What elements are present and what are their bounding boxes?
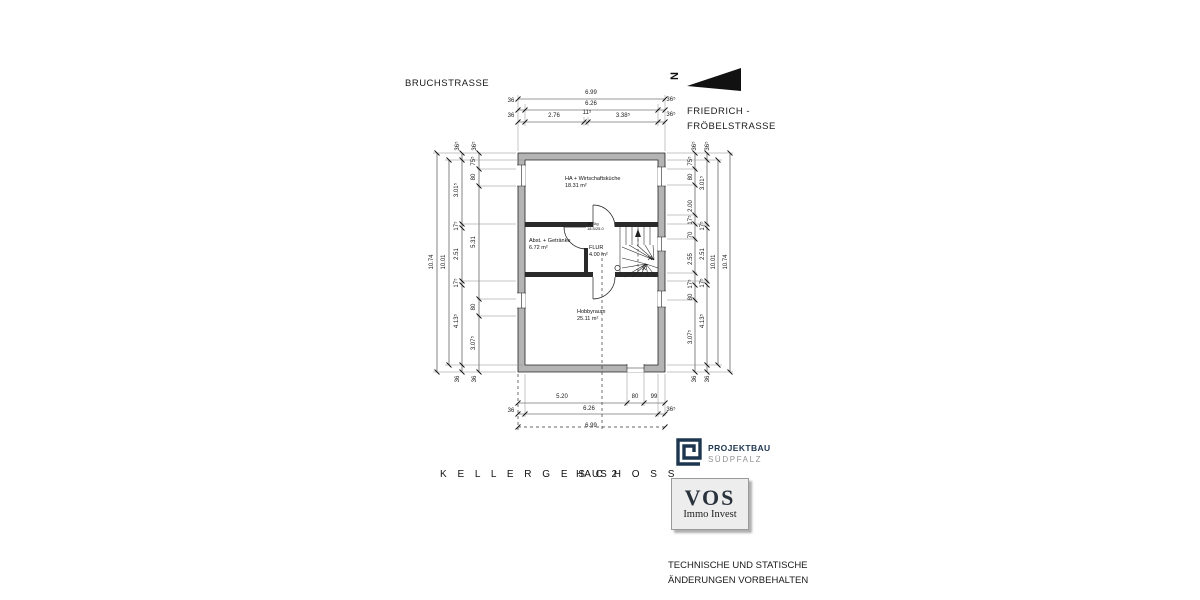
street-label-bruchstrasse: BRUCHSTRASSE <box>405 78 489 89</box>
stair-cross-marks <box>642 256 652 270</box>
projektbau-logo-subtext: SÜDPFALZ <box>708 455 762 464</box>
dim-bottom-wall: 36⁵ <box>666 407 675 413</box>
dim-left-wall: 36⁵ <box>472 141 478 150</box>
north-label: N <box>669 72 681 80</box>
dim-right-opening: 80 <box>688 294 694 301</box>
dim-right-opening: 75⁵ <box>688 156 694 165</box>
north-arrow-icon <box>687 68 741 91</box>
dim-right-wall: 36 <box>692 376 698 383</box>
dim-right-total: 10.74 <box>723 254 729 269</box>
vos-logo-subtext: Immo Invest <box>683 509 736 521</box>
room-area-wirtschaftskueche: 18.31 m² <box>565 183 587 189</box>
dim-top-total: 6.99 <box>585 90 597 96</box>
dim-left-room: 3.01⁵ <box>454 183 460 197</box>
dim-right-opening: 17⁵ <box>688 215 694 224</box>
room-area-abstellraum: 6.72 m² <box>529 245 548 251</box>
dim-left-wall: 36 <box>472 376 478 383</box>
dim-top-seg: 11⁵ <box>583 110 592 116</box>
dim-right-opening: 3.07⁵ <box>688 330 694 344</box>
dim-bottom-seg: 80 <box>632 394 639 400</box>
dim-right-room: 4.13⁵ <box>700 314 706 328</box>
room-area-flur: 4.00 m² <box>589 252 608 258</box>
dim-right-opening: 80 <box>688 174 694 181</box>
walkline-arrow <box>635 229 641 237</box>
dim-left-room: 2.51 <box>454 248 460 260</box>
room-name-wirtschaftskueche: HA + Wirtschaftsküche <box>565 176 620 182</box>
dim-right-room: 17⁵ <box>700 221 706 230</box>
dim-top-inner: 6.26 <box>585 101 597 107</box>
dim-left-opening: 3.07⁵ <box>471 336 477 350</box>
dim-right-room: 17⁵ <box>700 278 706 287</box>
dim-right-opening: 2.55 <box>688 253 694 265</box>
room-area-hobbyraum: 25.11 m² <box>577 316 598 322</box>
dim-right-opening: 17⁵ <box>688 279 694 288</box>
drawing-title-haus: HAUS 2 <box>576 469 618 480</box>
dim-left-room: 4.13⁵ <box>454 314 460 328</box>
stair-start-circle <box>615 265 620 270</box>
dim-bottom-total: 6.99 <box>585 423 597 429</box>
floorplan-sheet: BRUCHSTRASSE FRIEDRICH - FRÖBELSTRASSE N… <box>0 0 1200 600</box>
room-name-hobbyraum: Hobbyraum <box>577 309 605 315</box>
dim-bottom-wall: 36 <box>508 408 515 414</box>
dim-left-opening: 5.31 <box>471 236 477 248</box>
dim-top-wall: 36 <box>508 113 515 119</box>
dim-left-opening: 75⁵ <box>471 156 477 165</box>
dim-right-wall: 36⁵ <box>692 141 698 150</box>
dim-right-wall: 36⁵ <box>705 141 711 150</box>
dim-left-room: 17⁵ <box>454 278 460 287</box>
disclaimer-line2: ÄNDERUNGEN VORBEHALTEN <box>668 573 808 588</box>
dim-bottom-inner: 6.26 <box>583 406 595 412</box>
dim-right-room: 3.01⁵ <box>700 176 706 190</box>
room-name-abstellraum: Abst. + Getränke <box>529 238 570 244</box>
vos-logo: VOS Immo Invest <box>671 478 749 530</box>
dim-bottom-seg: 99 <box>651 394 658 400</box>
staircase <box>615 227 658 277</box>
dim-right-opening: 2.00 <box>688 200 694 212</box>
dim-right-opening: 70 <box>688 232 694 239</box>
dim-left-total: 10.74 <box>429 254 435 269</box>
dim-right-wall: 36 <box>705 376 711 383</box>
dim-top-seg: 3.38⁵ <box>616 113 630 119</box>
dim-left-opening: 80 <box>471 304 477 311</box>
projektbau-logo-text: PROJEKTBAU <box>708 443 771 453</box>
dim-left-opening: 80 <box>471 174 477 181</box>
street-label-friedrich: FRIEDRICH - <box>687 106 750 117</box>
dim-right-room: 2.51 <box>700 248 706 260</box>
dim-left-wall: 36⁵ <box>455 141 461 150</box>
dim-right-inner: 10.01 <box>711 254 717 269</box>
dim-left-room: 17⁵ <box>454 221 460 230</box>
dim-top-seg: 2.76 <box>548 113 560 119</box>
dim-top-wall: 36⁵ <box>666 97 675 103</box>
dim-top-wall: 36 <box>508 98 515 104</box>
outer-walls <box>518 153 665 372</box>
dim-bottom-seg: 5.20 <box>556 394 568 400</box>
plan-drawing <box>0 0 1200 600</box>
dim-left-wall: 36 <box>455 376 461 383</box>
vos-logo-text: VOS <box>685 487 736 509</box>
dim-left-inner: 10.01 <box>441 254 447 269</box>
room-name-flur: FLUR <box>589 245 603 251</box>
disclaimer-line1: TECHNISCHE UND STATISCHE <box>668 558 808 573</box>
drawing-title: K E L L E R G E S C H O S S <box>440 469 678 480</box>
street-label-froebelstrasse: FRÖBELSTRASSE <box>687 121 776 132</box>
projektbau-logo-icon <box>678 440 700 464</box>
dim-top-wall: 36⁵ <box>666 112 675 118</box>
stair-note-line2: 18.5/25.0 <box>587 227 604 231</box>
